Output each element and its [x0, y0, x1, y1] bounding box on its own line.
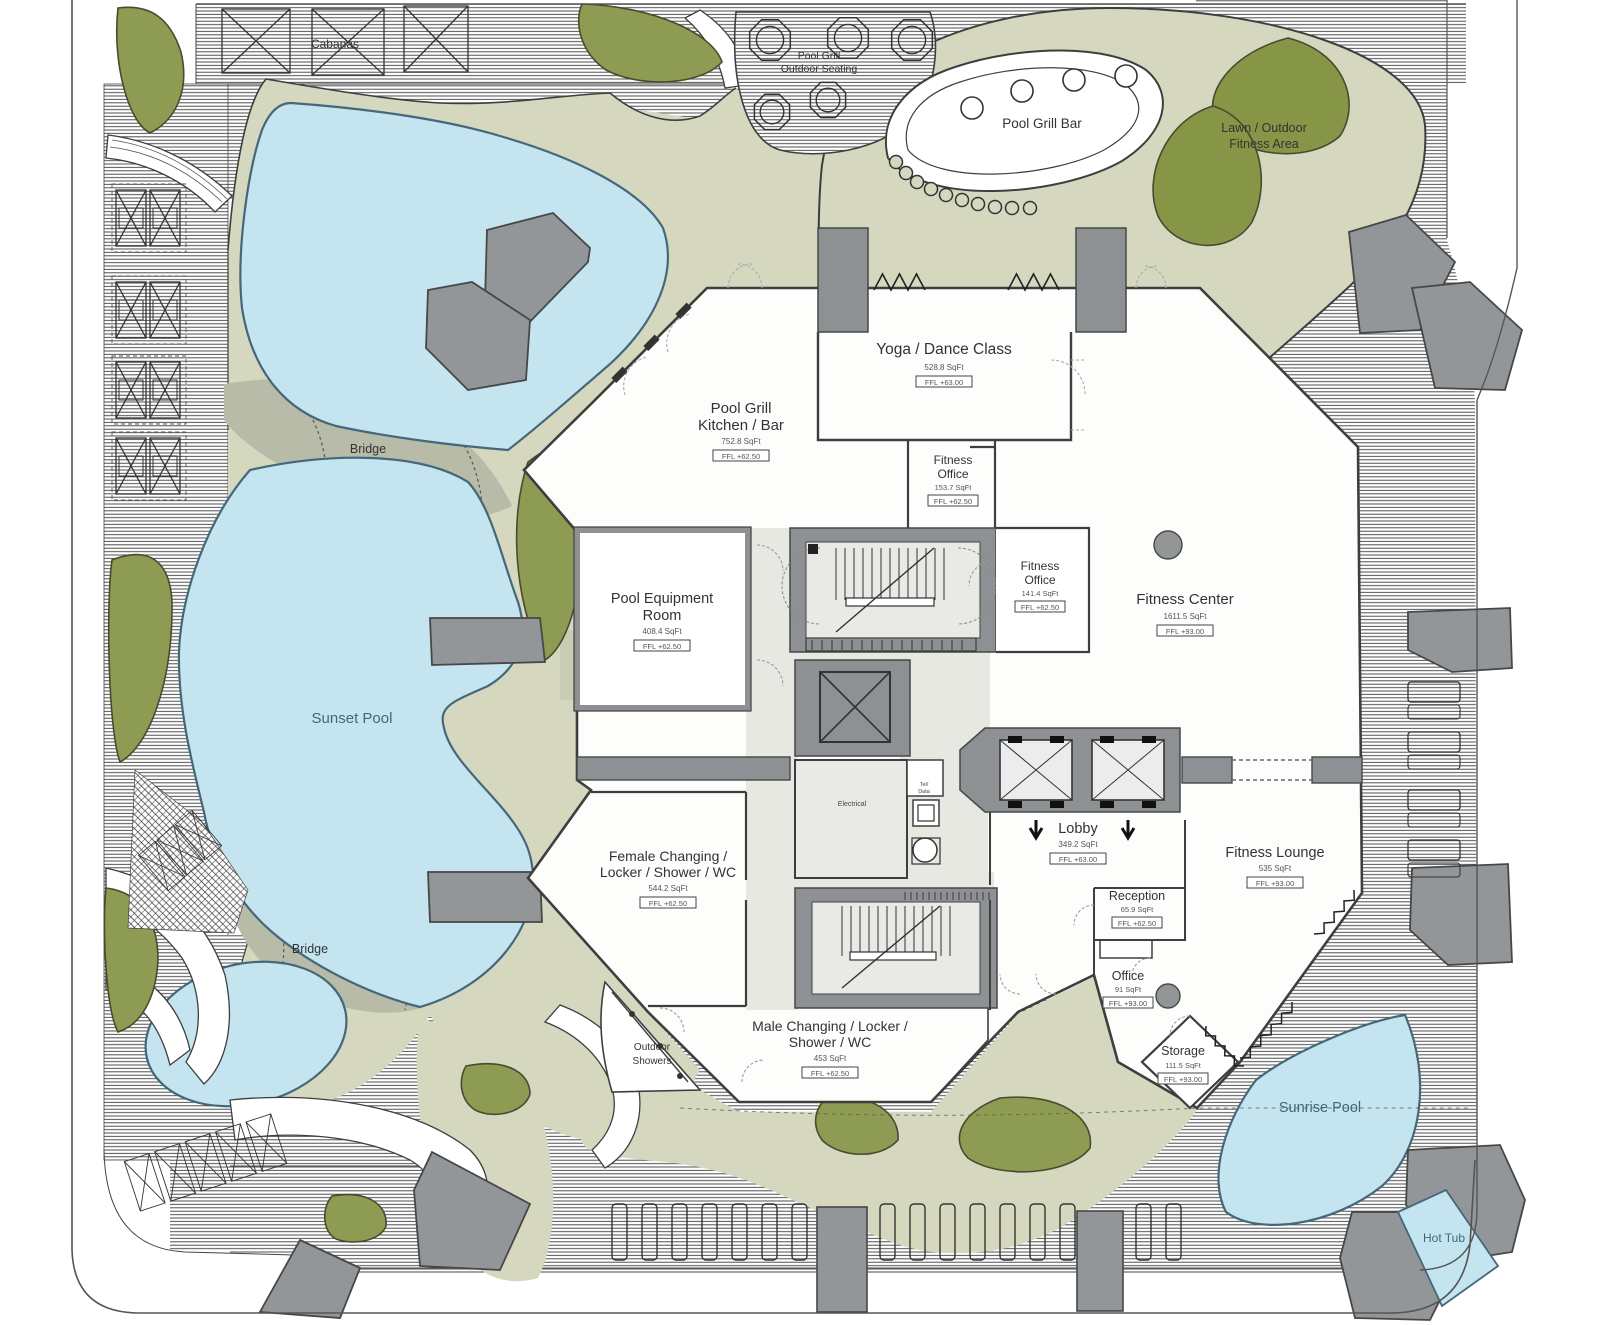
svg-text:Fitness Area: Fitness Area: [1229, 137, 1299, 151]
svg-text:FFL +93.00: FFL +93.00: [1166, 627, 1204, 636]
svg-text:Room: Room: [643, 608, 682, 624]
svg-text:408.4 SqFt: 408.4 SqFt: [642, 627, 682, 636]
svg-text:Hot Tub: Hot Tub: [1423, 1231, 1465, 1245]
svg-text:Lobby: Lobby: [1058, 821, 1098, 837]
svg-text:FFL +93.00: FFL +93.00: [1164, 1075, 1202, 1084]
svg-text:Office: Office: [937, 467, 968, 481]
svg-text:Sunrise Pool: Sunrise Pool: [1279, 1100, 1361, 1116]
svg-text:Female Changing /: Female Changing /: [609, 848, 727, 864]
svg-text:349.2 SqFt: 349.2 SqFt: [1058, 840, 1098, 849]
svg-text:Bridge: Bridge: [292, 942, 328, 956]
svg-text:FFL +63.00: FFL +63.00: [1059, 855, 1097, 864]
svg-text:Sunset Pool: Sunset Pool: [312, 710, 393, 727]
svg-text:535 SqFt: 535 SqFt: [1259, 864, 1292, 873]
svg-text:Outdoor Seating: Outdoor Seating: [781, 63, 858, 75]
svg-text:544.2 SqFt: 544.2 SqFt: [648, 884, 688, 893]
svg-text:FFL +93.00: FFL +93.00: [1256, 879, 1294, 888]
svg-text:Pool Grill: Pool Grill: [798, 50, 841, 62]
svg-text:153.7 SqFt: 153.7 SqFt: [935, 483, 973, 492]
svg-text:FFL +62.50: FFL +62.50: [649, 899, 687, 908]
svg-text:Lawn / Outdoor: Lawn / Outdoor: [1221, 121, 1306, 135]
svg-text:528.8 SqFt: 528.8 SqFt: [924, 363, 964, 372]
svg-text:FFL +62.50: FFL +62.50: [1021, 603, 1059, 612]
svg-text:FFL +62.50: FFL +62.50: [934, 497, 972, 506]
svg-text:Office: Office: [1112, 969, 1144, 983]
svg-text:91 SqFt: 91 SqFt: [1115, 985, 1142, 994]
svg-text:FFL +62.50: FFL +62.50: [722, 452, 760, 461]
svg-text:Outdoor: Outdoor: [634, 1042, 671, 1053]
svg-text:Electrical: Electrical: [838, 801, 867, 808]
svg-text:Male Changing / Locker /: Male Changing / Locker /: [752, 1018, 908, 1034]
svg-text:FFL +63.00: FFL +63.00: [925, 378, 963, 387]
svg-text:Bridge: Bridge: [350, 442, 386, 456]
svg-text:Pool Grill: Pool Grill: [711, 400, 772, 417]
svg-text:Locker / Shower / WC: Locker / Shower / WC: [600, 864, 736, 880]
svg-text:Fitness Center: Fitness Center: [1136, 591, 1234, 608]
svg-text:Office: Office: [1024, 573, 1055, 587]
svg-text:111.5 SqFt: 111.5 SqFt: [1165, 1061, 1201, 1070]
svg-text:Tel/: Tel/: [920, 782, 929, 788]
svg-text:1611.5 SqFt: 1611.5 SqFt: [1164, 612, 1208, 621]
svg-text:Kitchen / Bar: Kitchen / Bar: [698, 417, 784, 434]
svg-text:Pool Grill Bar: Pool Grill Bar: [1002, 116, 1082, 131]
svg-text:Shower / WC: Shower / WC: [789, 1034, 871, 1050]
svg-text:Fitness Lounge: Fitness Lounge: [1225, 845, 1324, 861]
svg-text:FFL +62.50: FFL +62.50: [643, 642, 681, 651]
svg-text:Reception: Reception: [1109, 889, 1165, 903]
svg-text:Pool Equipment: Pool Equipment: [611, 591, 713, 607]
svg-text:Storage: Storage: [1161, 1044, 1205, 1058]
svg-text:Fitness: Fitness: [934, 453, 973, 467]
svg-text:752.8 SqFt: 752.8 SqFt: [721, 437, 761, 446]
svg-text:Cabanas: Cabanas: [311, 37, 359, 51]
svg-text:Showers: Showers: [633, 1056, 672, 1067]
svg-text:FFL +93.00: FFL +93.00: [1109, 999, 1147, 1008]
svg-text:FFL +62.50: FFL +62.50: [811, 1069, 849, 1078]
svg-text:453 SqFt: 453 SqFt: [814, 1054, 847, 1063]
svg-text:FFL +62.50: FFL +62.50: [1118, 919, 1156, 928]
svg-text:Data: Data: [918, 789, 931, 795]
svg-text:Yoga / Dance Class: Yoga / Dance Class: [876, 341, 1012, 358]
svg-text:Fitness: Fitness: [1021, 559, 1060, 573]
svg-text:141.4 SqFt: 141.4 SqFt: [1022, 589, 1060, 598]
svg-text:65.9 SqFt: 65.9 SqFt: [1121, 905, 1154, 914]
